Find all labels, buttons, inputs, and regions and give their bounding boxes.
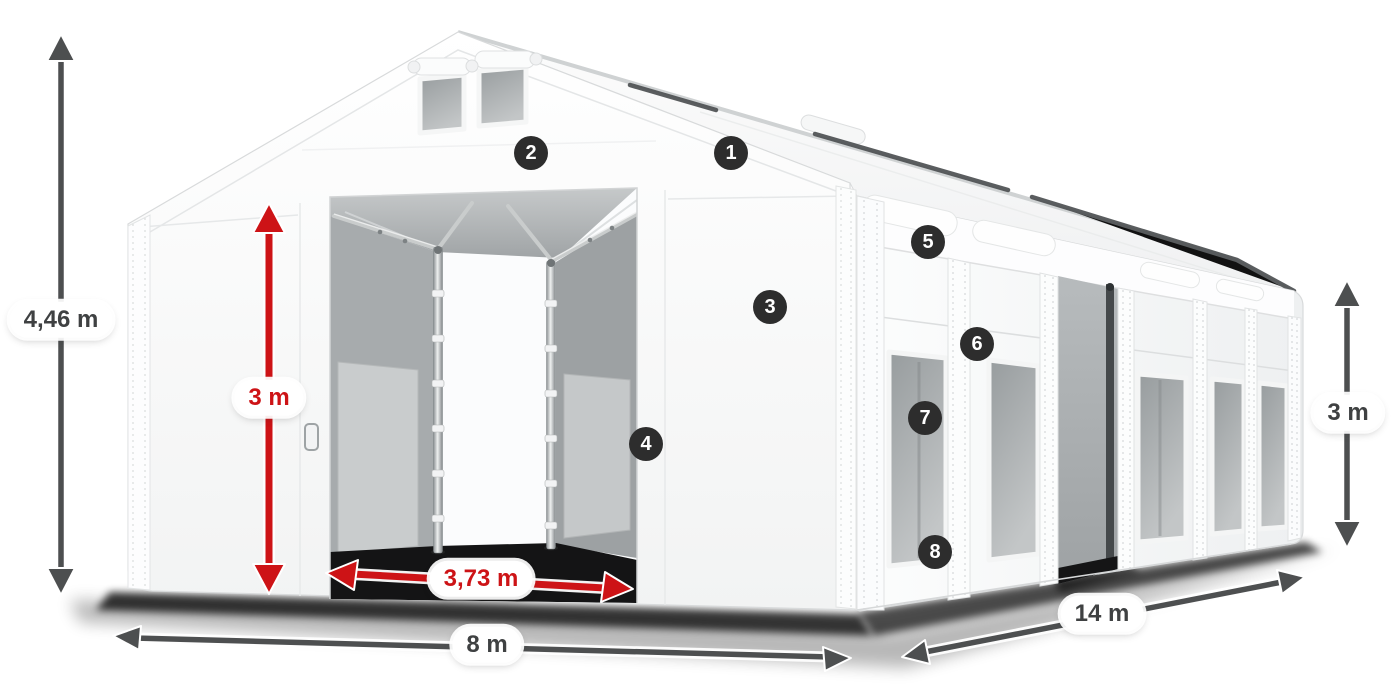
feature-marker-6[interactable]: 6 [960,327,994,361]
dimension-label-door-width: 3,73 m [430,561,533,597]
dimension-label-width: 8 m [452,627,521,663]
feature-marker-2[interactable]: 2 [514,136,548,170]
product-dimension-diagram: 4,46 m 3 m 3,73 m 8 m 14 m 3 m 1 2 3 4 5… [0,0,1400,700]
dimension-label-door-height: 3 m [234,380,303,416]
front-door-opening [325,180,645,610]
feature-marker-7[interactable]: 7 [908,401,942,435]
dimension-label-length: 14 m [1061,596,1144,632]
side-entrance-gap [1058,276,1118,584]
feature-marker-5[interactable]: 5 [911,225,945,259]
feature-marker-3[interactable]: 3 [753,290,787,324]
feature-marker-4[interactable]: 4 [629,427,663,461]
door-handle [305,424,318,450]
feature-marker-8[interactable]: 8 [918,535,952,569]
dimension-label-total-height: 4,46 m [10,302,113,338]
tent-illustration [0,0,1400,700]
dimension-label-side-height: 3 m [1313,395,1382,431]
feature-marker-1[interactable]: 1 [714,136,748,170]
